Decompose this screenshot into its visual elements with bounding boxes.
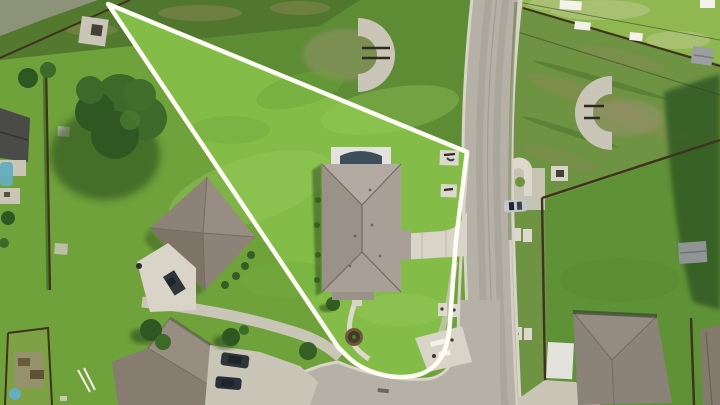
se-patio-cover — [546, 342, 574, 379]
aerial-scene — [0, 0, 720, 405]
pool — [0, 162, 13, 186]
gray-shed-2 — [678, 241, 707, 264]
basketball-hoop — [136, 263, 142, 269]
far-right-house — [700, 325, 720, 405]
aerial-photo — [0, 0, 720, 405]
tree-ring — [345, 328, 363, 346]
roof-south-bump — [332, 292, 374, 300]
utility-pad — [551, 166, 568, 181]
subject-house — [312, 147, 411, 306]
gray-shed — [691, 46, 714, 66]
roof-east-bump — [399, 230, 411, 260]
car-on-street — [504, 199, 528, 212]
kiddie-pool — [9, 388, 21, 400]
back-stoop — [352, 300, 362, 306]
west-pad — [54, 243, 68, 255]
apex-utility-pad — [78, 16, 108, 46]
